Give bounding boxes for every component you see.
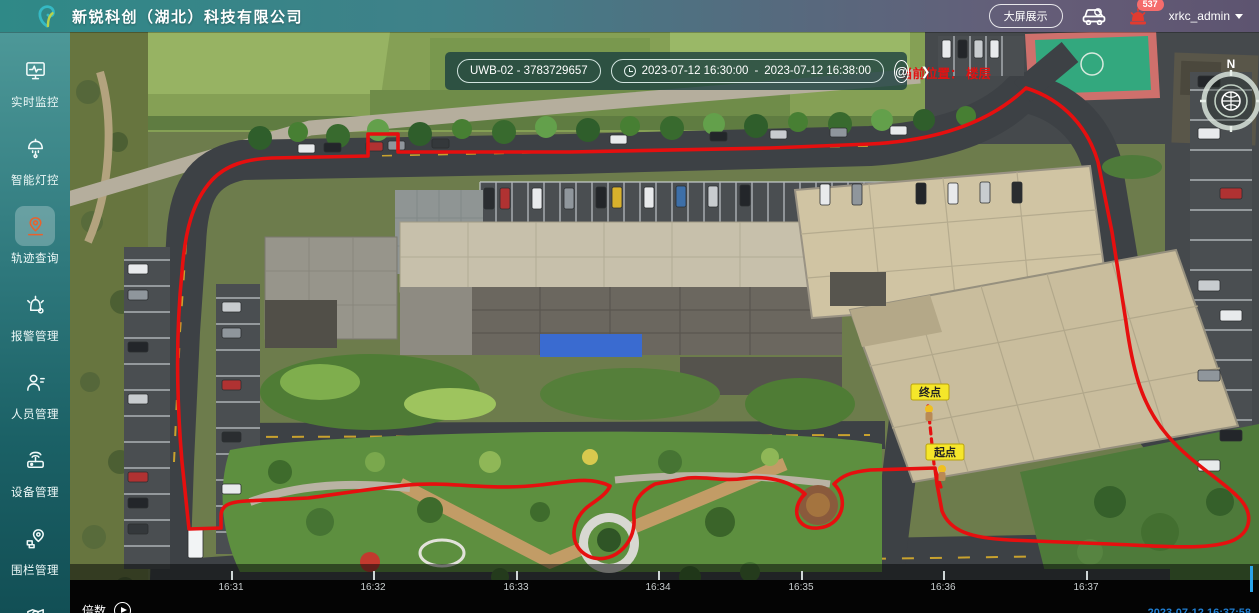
tick-label: 16:32 (351, 582, 395, 593)
search-button[interactable]: @ (894, 60, 909, 83)
username-label: xrkc_admin (1169, 9, 1230, 23)
device-select[interactable]: UWB-02 - 3783729657 (457, 59, 601, 83)
timeline-tick (373, 571, 375, 580)
timeline-tick (658, 571, 660, 580)
track-query-toolbar: UWB-02 - 3783729657 2023-07-12 16:30:00 … (445, 52, 907, 90)
timeline-tick (1086, 571, 1088, 580)
time-separator: - (754, 65, 758, 77)
playback-timeline[interactable]: 16:31 16:32 16:33 16:34 16:35 16:36 16:3… (70, 564, 1259, 613)
alarm-bell-icon[interactable]: 537 (1125, 6, 1151, 26)
app-root: 新锐科创（湖北）科技有限公司 大屏展示 537 (0, 0, 1259, 613)
tick-label: 16:31 (209, 582, 253, 593)
play-button[interactable] (114, 602, 131, 613)
chevron-right-icon: ❯ (921, 62, 931, 81)
map-pin-icon (15, 596, 55, 613)
sidebar-item-personnel-manage[interactable]: 人员管理 (5, 362, 65, 422)
lamp-icon (15, 128, 55, 168)
alarm-count-badge: 537 (1137, 0, 1164, 11)
sidebar-item-label: 围栏管理 (11, 562, 59, 578)
sidebar-item-label: 人员管理 (11, 406, 59, 422)
playback-current-time: 2023-07-12 16:37:58 (1148, 607, 1251, 613)
sidebar-item-map[interactable] (5, 596, 65, 613)
vehicle-icon[interactable] (1081, 6, 1107, 26)
map-aerial-view: 终点 起点 当前位置： 楼层 N (70, 32, 1259, 613)
fence-pin-icon (15, 518, 55, 558)
sidebar-bottom: V 1.0 (5, 596, 65, 613)
person-icon (15, 362, 55, 402)
device-icon (15, 440, 55, 480)
timeline-tick (943, 571, 945, 580)
caret-down-icon (1235, 14, 1243, 19)
time-range-picker[interactable]: 2023-07-12 16:30:00 - 2023-07-12 16:38:0… (611, 59, 884, 83)
clock-icon (624, 65, 636, 77)
tick-label: 16:36 (921, 582, 965, 593)
header-actions: 大屏展示 537 xrkc_admin (989, 4, 1259, 28)
svg-text:终点: 终点 (919, 385, 941, 399)
tick-label: 16:33 (494, 582, 538, 593)
top-header: 新锐科创（湖北）科技有限公司 大屏展示 537 (0, 0, 1259, 32)
tick-label: 16:37 (1064, 582, 1108, 593)
timeline-tick (516, 571, 518, 580)
company-logo-icon (36, 4, 58, 28)
timeline-playhead[interactable] (1250, 566, 1253, 592)
compass-north-label: N (1227, 57, 1236, 71)
timeline-tick (231, 571, 233, 580)
sidebar-item-realtime-monitor[interactable]: 实时监控 (5, 50, 65, 110)
sidebar-nav: 实时监控 智能灯控 轨迹查询 报警管理 人员管理 (0, 32, 70, 613)
sidebar-item-label: 实时监控 (11, 94, 59, 110)
monitor-icon (15, 50, 55, 90)
expand-panel-button[interactable]: ❯ (919, 62, 933, 81)
sidebar-item-label: 轨迹查询 (11, 250, 59, 266)
current-location-alert: 当前位置： 楼层 (900, 66, 991, 81)
big-screen-button[interactable]: 大屏展示 (989, 4, 1063, 28)
sidebar-item-label: 智能灯控 (11, 172, 59, 188)
sidebar-item-label: 报警管理 (11, 328, 59, 344)
tick-label: 16:34 (636, 582, 680, 593)
search-icon: @ (895, 64, 908, 79)
time-end-value: 2023-07-12 16:38:00 (764, 65, 871, 77)
time-start-value: 2023-07-12 16:30:00 (642, 65, 749, 77)
svg-text:起点: 起点 (933, 445, 956, 459)
sidebar-item-track-query[interactable]: 轨迹查询 (5, 206, 65, 266)
timeline-tick-strip[interactable] (70, 564, 1259, 580)
sidebar-item-smart-light[interactable]: 智能灯控 (5, 128, 65, 188)
speed-label: 倍数 (82, 602, 106, 613)
sidebar-item-device-manage[interactable]: 设备管理 (5, 440, 65, 500)
tick-label: 16:35 (779, 582, 823, 593)
timeline-bottom-bar: 16:31 16:32 16:33 16:34 16:35 16:36 16:3… (70, 580, 1259, 613)
sidebar-item-alarm-manage[interactable]: 报警管理 (5, 284, 65, 344)
device-select-value: UWB-02 - 3783729657 (470, 65, 588, 77)
sidebar-item-label: 设备管理 (11, 484, 59, 500)
timeline-tick (801, 571, 803, 580)
user-menu[interactable]: xrkc_admin (1169, 9, 1243, 23)
speed-control: 倍数 (82, 602, 131, 613)
alarm-manage-icon (15, 284, 55, 324)
sidebar-item-fence-manage[interactable]: 围栏管理 (5, 518, 65, 578)
company-title: 新锐科创（湖北）科技有限公司 (72, 6, 303, 27)
track-pin-icon (15, 206, 55, 246)
map-container[interactable]: 终点 起点 当前位置： 楼层 N (70, 32, 1259, 613)
